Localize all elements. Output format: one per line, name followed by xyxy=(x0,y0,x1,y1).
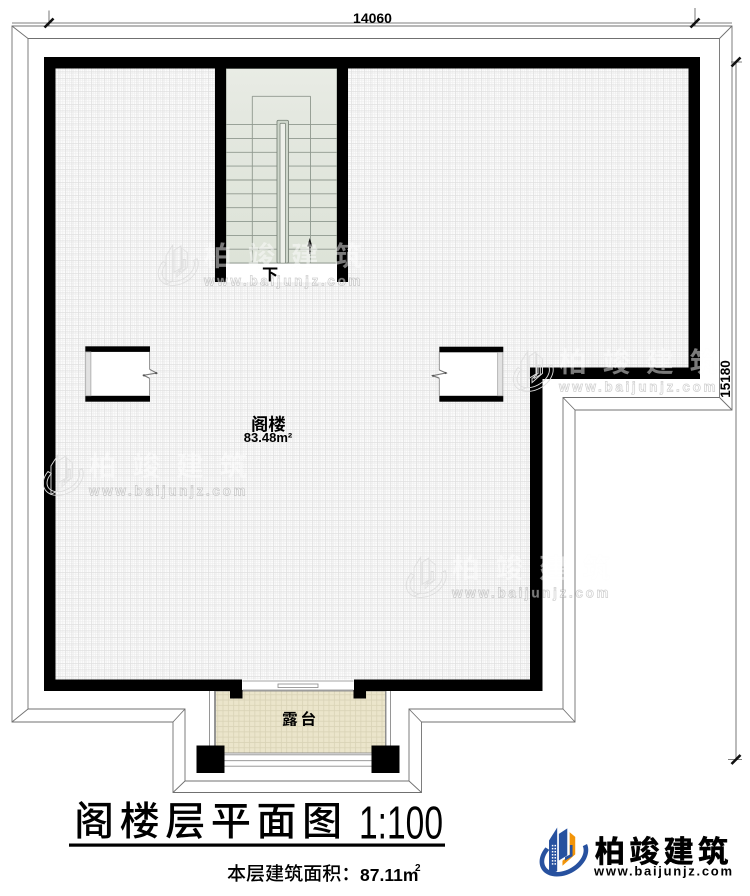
svg-text:14060: 14060 xyxy=(353,10,392,26)
svg-text:2: 2 xyxy=(415,863,421,874)
svg-text:83.48m²: 83.48m² xyxy=(244,430,293,445)
svg-text:15180: 15180 xyxy=(718,360,733,398)
svg-text:87.11m: 87.11m xyxy=(360,865,418,885)
svg-text:1:100: 1:100 xyxy=(359,797,443,849)
